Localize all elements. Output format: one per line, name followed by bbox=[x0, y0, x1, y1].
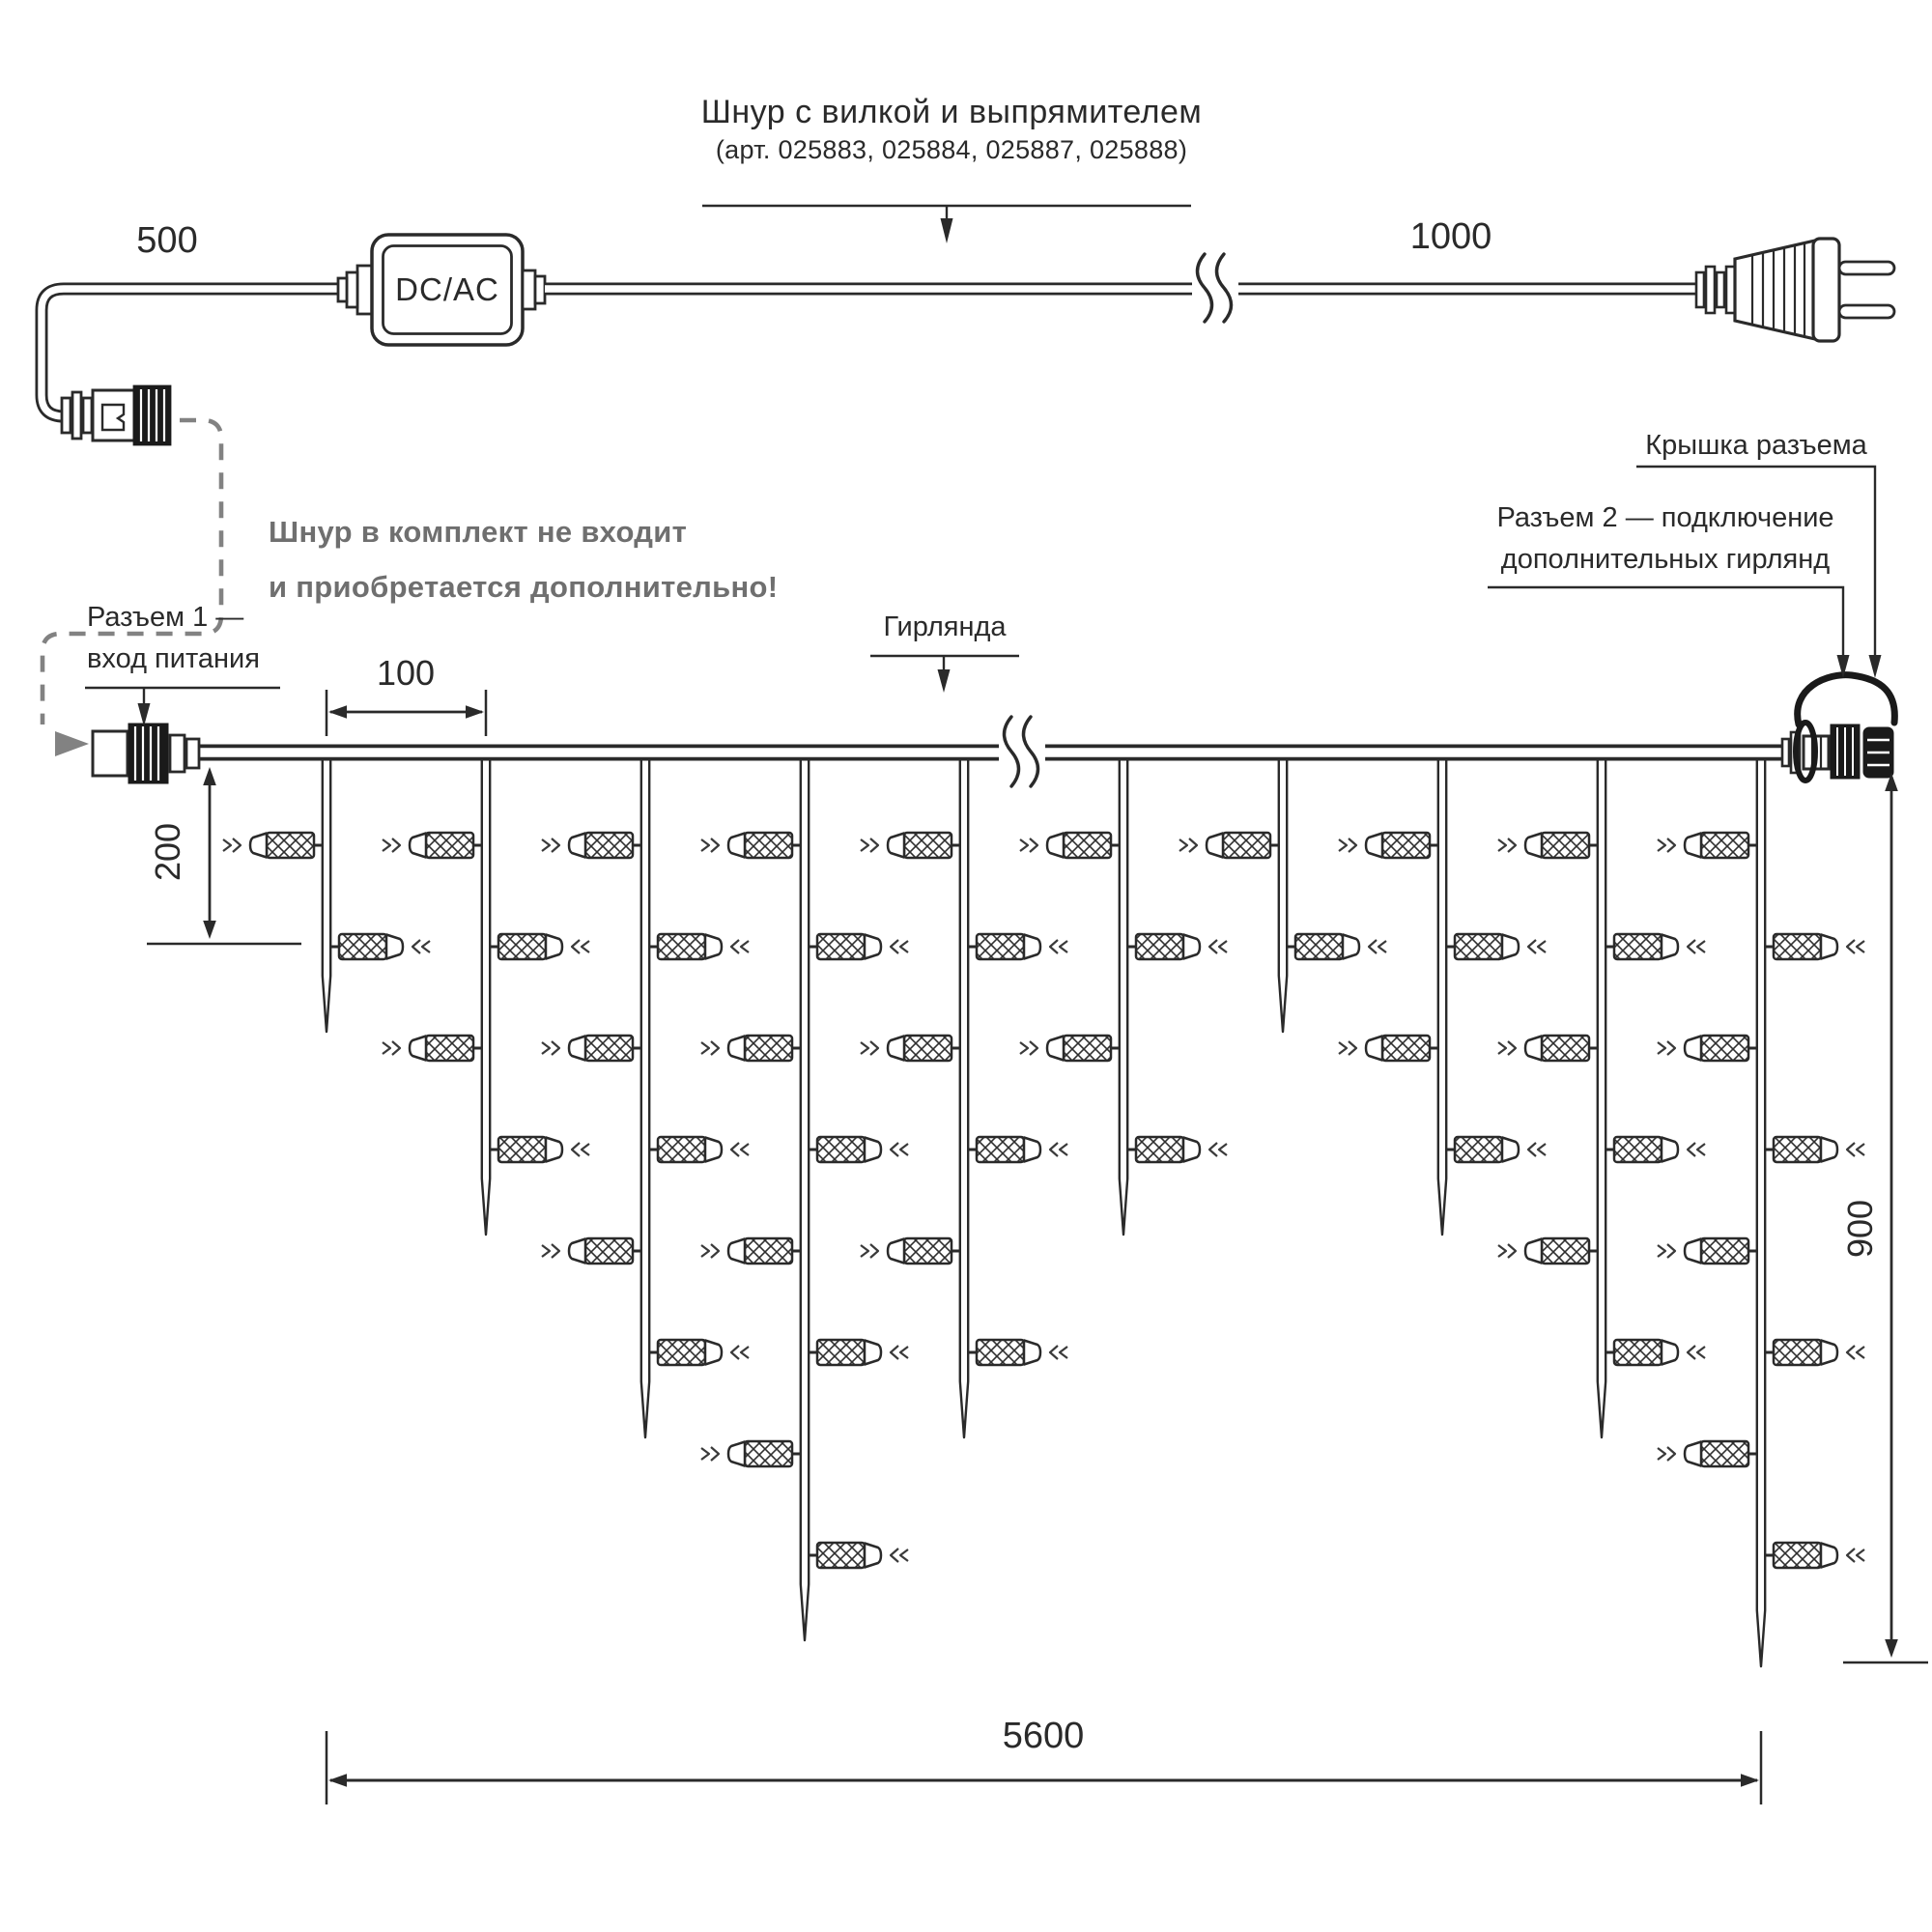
mains-plug bbox=[1696, 239, 1894, 341]
led-bulb bbox=[1339, 833, 1438, 858]
connector1-leader bbox=[85, 688, 280, 726]
led-bulb bbox=[968, 1137, 1067, 1162]
led-bulb bbox=[809, 1137, 908, 1162]
cord-break-icon bbox=[1192, 254, 1238, 322]
garland-drop bbox=[1598, 757, 1605, 1437]
led-bulb bbox=[542, 1238, 641, 1264]
connector2-label-line1: Разъем 2 — подключение bbox=[1496, 497, 1833, 539]
led-bulb bbox=[809, 1543, 908, 1568]
led-bulb bbox=[1658, 1441, 1757, 1466]
dim-5600-label: 5600 bbox=[1003, 1716, 1085, 1757]
led-bulb bbox=[1605, 934, 1705, 959]
garland-break-icon bbox=[999, 717, 1045, 786]
dim-900-label: 900 bbox=[1840, 1200, 1881, 1258]
led-bulb bbox=[861, 1036, 960, 1061]
led-bulb bbox=[1605, 1137, 1705, 1162]
connector2-label: Разъем 2 — подключение дополнительных ги… bbox=[1496, 497, 1833, 581]
connector1-label-line2: вход питания bbox=[87, 639, 260, 680]
connector2-label-line2: дополнительных гирлянд bbox=[1496, 539, 1833, 581]
garland-drop bbox=[323, 757, 330, 1032]
led-bulb bbox=[1498, 833, 1598, 858]
diagram-canvas bbox=[0, 0, 1932, 1932]
led-bulb bbox=[701, 833, 801, 858]
led-bulb bbox=[649, 934, 749, 959]
led-bulb bbox=[1498, 1238, 1598, 1264]
led-bulb bbox=[1658, 833, 1757, 858]
led-bulb bbox=[649, 1340, 749, 1365]
led-bulb bbox=[1020, 1036, 1120, 1061]
led-bulb bbox=[1020, 833, 1120, 858]
connector1-label-line1: Разъем 1 — bbox=[87, 597, 260, 639]
garland-label: Гирлянда bbox=[883, 607, 1006, 648]
garland-drops bbox=[223, 757, 1864, 1666]
connector-1 bbox=[93, 724, 199, 783]
led-bulb bbox=[701, 1238, 801, 1264]
led-bulb bbox=[1658, 1036, 1757, 1061]
led-bulb bbox=[1127, 934, 1227, 959]
led-bulb bbox=[1446, 934, 1546, 959]
garland-drop bbox=[1757, 757, 1765, 1666]
led-bulb bbox=[1339, 1036, 1438, 1061]
led-bulb bbox=[968, 934, 1067, 959]
led-bulb bbox=[490, 1137, 589, 1162]
dc-ac-label: DC/AC bbox=[372, 235, 523, 345]
led-bulb bbox=[701, 1441, 801, 1466]
led-bulb bbox=[809, 1340, 908, 1365]
led-bulb bbox=[383, 833, 482, 858]
led-bulb bbox=[1605, 1340, 1705, 1365]
cord-title: Шнур с вилкой и выпрямителем bbox=[701, 94, 1203, 131]
led-bulb bbox=[701, 1036, 801, 1061]
led-bulb bbox=[1127, 1137, 1227, 1162]
cord-end-connector bbox=[62, 386, 170, 444]
garland-drop bbox=[801, 757, 809, 1640]
connector-2 bbox=[1782, 675, 1894, 781]
led-bulb bbox=[1765, 1543, 1864, 1568]
garland-drop bbox=[1120, 757, 1127, 1235]
cap-label: Крышка разъема bbox=[1645, 425, 1867, 467]
led-bulb bbox=[1765, 1137, 1864, 1162]
cord-subtitle: (арт. 025883, 025884, 025887, 025888) bbox=[716, 135, 1187, 165]
led-bulb bbox=[861, 833, 960, 858]
dim-500-label: 500 bbox=[136, 220, 197, 262]
led-bulb bbox=[1287, 934, 1386, 959]
garland-leader bbox=[870, 656, 1019, 693]
diagram-page: Шнур с вилкой и выпрямителем (арт. 02588… bbox=[0, 0, 1932, 1932]
led-bulb bbox=[1765, 1340, 1864, 1365]
garland-drop bbox=[641, 757, 649, 1437]
not-included-dashed-path bbox=[43, 420, 221, 756]
led-bulb bbox=[490, 934, 589, 959]
led-bulb bbox=[542, 1036, 641, 1061]
dim-200-label: 200 bbox=[148, 823, 188, 881]
led-bulb bbox=[1658, 1238, 1757, 1264]
connector1-label: Разъем 1 — вход питания bbox=[87, 597, 260, 680]
dim-100 bbox=[327, 690, 486, 736]
led-bulb bbox=[861, 1238, 960, 1264]
garland-drop bbox=[1279, 757, 1287, 1032]
title-leader-arrow bbox=[702, 206, 1191, 243]
dim-100-label: 100 bbox=[377, 653, 435, 694]
led-bulb bbox=[383, 1036, 482, 1061]
not-included-note: Шнур в комплект не входит и приобретаетс… bbox=[269, 504, 778, 614]
led-bulb bbox=[1446, 1137, 1546, 1162]
led-bulb bbox=[809, 934, 908, 959]
led-bulb bbox=[1179, 833, 1279, 858]
dim-1000-label: 1000 bbox=[1410, 216, 1492, 258]
garland-drop bbox=[960, 757, 968, 1437]
note-line-2: и приобретается дополнительно! bbox=[269, 559, 778, 614]
garland-drop bbox=[1438, 757, 1446, 1235]
garland-drop bbox=[482, 757, 490, 1235]
static-line-art bbox=[42, 206, 1894, 786]
led-bulb bbox=[1765, 934, 1864, 959]
led-bulb bbox=[223, 833, 323, 858]
led-bulb bbox=[330, 934, 430, 959]
led-bulb bbox=[542, 833, 641, 858]
led-bulb bbox=[1498, 1036, 1598, 1061]
led-bulb bbox=[968, 1340, 1067, 1365]
led-bulb bbox=[649, 1137, 749, 1162]
connector2-leader bbox=[1488, 587, 1850, 678]
note-line-1: Шнур в комплект не входит bbox=[269, 504, 778, 559]
